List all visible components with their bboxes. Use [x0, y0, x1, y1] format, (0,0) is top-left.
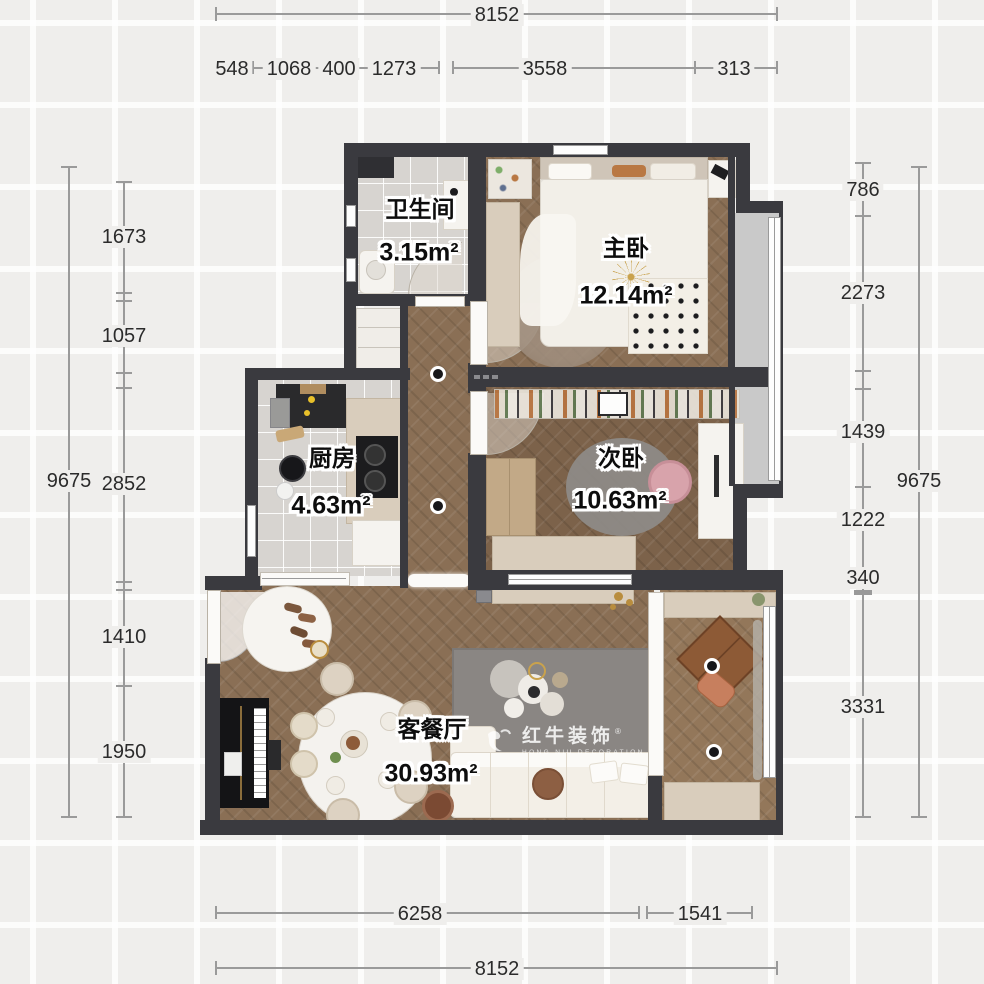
- closet-shelf-line: [358, 327, 400, 328]
- lemon-decor: [304, 410, 310, 416]
- vent-dash: [474, 375, 480, 379]
- bed-pillow: [650, 163, 696, 180]
- kitchen-sliding-door: [260, 572, 350, 586]
- plate: [326, 776, 345, 795]
- room-name-master: 主卧: [603, 229, 649, 263]
- dim-left-sub-2: 2852: [98, 473, 151, 495]
- dim-tick: [855, 816, 871, 818]
- room-area-bathroom: 3.15m²: [379, 239, 458, 268]
- sofa-pillow: [619, 762, 649, 785]
- bathroom-window: [346, 205, 356, 227]
- wall-second-right: [729, 385, 735, 486]
- dim-right-sub-3: 1222: [837, 509, 890, 531]
- room-area-living: 30.93m²: [384, 760, 477, 789]
- dim-right-sub-4: 340: [842, 567, 883, 589]
- dim-left-sub-4: 1950: [98, 741, 151, 763]
- dim-tick: [116, 387, 132, 389]
- dim-tick: [116, 685, 132, 687]
- dim-top-total: 8152: [471, 4, 524, 26]
- shower-area: [358, 156, 394, 178]
- room-name-bathroom: 卫生间: [386, 190, 455, 224]
- dim-tick: [438, 61, 440, 74]
- console-device: [476, 590, 492, 603]
- gold-tray: [310, 640, 329, 659]
- ceiling-light-icon: [704, 658, 720, 674]
- duvet-spill: [520, 214, 576, 326]
- dim-tick: [776, 7, 778, 21]
- dim-tick: [855, 215, 871, 217]
- hall-closet: [356, 308, 404, 372]
- piano-keys: [254, 708, 266, 798]
- master-dresser: [486, 202, 520, 347]
- sofa-pillow: [589, 760, 620, 784]
- stool: [290, 750, 318, 778]
- wall-hallway-left: [400, 303, 408, 588]
- watermark-brand: 红牛装饰: [522, 727, 614, 746]
- window-line: [774, 217, 775, 481]
- wall-left-bottom: [205, 658, 220, 823]
- bull-logo-icon: [484, 726, 514, 756]
- curtain: [753, 620, 762, 780]
- dim-top-sub-4: 3558: [519, 58, 572, 80]
- dim-top-sub-0: 548: [211, 58, 252, 80]
- master-door-jamb: [470, 301, 488, 365]
- watermark-text: 红牛装饰 ® HONG NIU DECORATION: [522, 727, 645, 756]
- registered-mark: ®: [615, 727, 621, 736]
- wall-top-right-v: [736, 157, 750, 203]
- desk-monitor: [714, 455, 719, 497]
- chandelier-ring-gold: [528, 662, 546, 680]
- dim-tick: [911, 816, 927, 818]
- robot-vacuum: [279, 455, 306, 482]
- dim-right-sub-5: 3331: [837, 696, 890, 718]
- chandelier-disc: [540, 692, 564, 716]
- bathroom-window: [346, 258, 356, 282]
- dim-tick: [215, 7, 217, 21]
- dim-right-total: 9675: [893, 470, 946, 492]
- dim-left-sub-1: 1057: [98, 325, 151, 347]
- chandelier-dot: [528, 686, 540, 698]
- bed-pillow: [548, 163, 592, 180]
- dim-line: [862, 162, 864, 818]
- wall-top: [344, 143, 750, 157]
- dim-tick: [638, 906, 640, 919]
- wall-bottom: [200, 820, 783, 835]
- wall-kitchen-top: [245, 368, 410, 380]
- vent-dash: [492, 375, 498, 379]
- dim-tick: [911, 166, 927, 168]
- dim-tick: [116, 816, 132, 818]
- kitchen-cabinet-low: [352, 520, 402, 566]
- gold-decor: [626, 599, 633, 606]
- burner-icon: [364, 470, 386, 492]
- gold-decor: [610, 604, 616, 610]
- wood-board: [300, 384, 326, 394]
- room-area-kitchen: 4.63m²: [291, 492, 370, 521]
- wall-closet-left: [344, 296, 356, 372]
- floor-plan-page: { "dims": { "top_total": "8152", "top_su…: [0, 0, 984, 984]
- dim-tick: [855, 162, 871, 164]
- dim-tick: [751, 906, 753, 919]
- dim-bottom-total: 8152: [471, 958, 524, 980]
- sofa-cushion-brown: [532, 768, 564, 800]
- plate: [316, 708, 335, 727]
- room-area-second: 10.63m²: [573, 487, 666, 516]
- dim-tick: [776, 961, 778, 975]
- ceiling-light-icon: [430, 498, 446, 514]
- dim-top-sub-2: 400: [318, 58, 359, 80]
- dim-tick: [452, 61, 454, 74]
- dim-tick: [116, 581, 132, 583]
- dim-tick: [61, 166, 77, 168]
- dim-right-sub-2: 1439: [837, 421, 890, 443]
- window-line: [508, 579, 632, 580]
- entry-shoe-rug: [242, 586, 332, 672]
- dim-tick: [646, 906, 648, 919]
- hallway-floor: [406, 304, 470, 590]
- watermark: 红牛装饰 ® HONG NIU DECORATION: [484, 726, 645, 756]
- doormat: [408, 574, 470, 587]
- door-track-line: [262, 578, 346, 579]
- closet-shelf-line: [358, 347, 400, 348]
- dim-top-sub-3: 1273: [368, 58, 421, 80]
- dim-line: [918, 166, 920, 818]
- food-dish: [346, 736, 360, 750]
- dim-left-sub-0: 1673: [98, 226, 151, 248]
- vent-dash: [483, 375, 489, 379]
- gold-decor: [614, 592, 623, 601]
- wall-entry-top: [205, 576, 262, 590]
- wall-top-right-h: [736, 201, 783, 213]
- dim-line: [68, 166, 70, 818]
- dim-tick: [61, 816, 77, 818]
- dim-line: [123, 181, 125, 818]
- bed-pillow-orange: [612, 165, 646, 177]
- wall-study-left-stub: [648, 774, 662, 822]
- sheet-music: [224, 752, 242, 776]
- dim-top-sub-5: 313: [713, 58, 754, 80]
- dim-tick: [776, 61, 778, 74]
- piano-bench: [268, 740, 281, 770]
- wall-right-notch: [733, 496, 747, 576]
- plate: [380, 712, 399, 731]
- master-top-window: [553, 145, 608, 155]
- wall-study-top: [630, 570, 783, 590]
- room-area-master: 12.14m²: [579, 282, 672, 311]
- dim-tick: [694, 61, 696, 74]
- burner-icon: [364, 444, 386, 466]
- wall-study-right: [776, 588, 783, 822]
- dim-tick: [855, 370, 871, 372]
- dim-tick: [855, 388, 871, 390]
- wall-master-left: [468, 157, 486, 303]
- dim-tick: [116, 292, 132, 294]
- dim-top-sub-1: 1068: [263, 58, 316, 80]
- dim-tick: [854, 590, 872, 595]
- pouf: [422, 790, 454, 822]
- bedroom-decor: [488, 159, 532, 199]
- dim-bottom-sub-1: 1541: [674, 903, 727, 925]
- shelf-frame: [598, 392, 628, 416]
- window-line: [769, 606, 770, 778]
- dim-tick: [116, 181, 132, 183]
- room-name-kitchen: 厨房: [309, 439, 355, 473]
- ceiling-light-icon: [706, 744, 722, 760]
- stool: [290, 712, 318, 740]
- tv-console: [492, 588, 634, 604]
- room-name-second: 次卧: [598, 439, 644, 473]
- dim-tick: [116, 589, 132, 591]
- dining-chair: [320, 662, 354, 696]
- dim-left-total: 9675: [43, 470, 96, 492]
- dim-left-sub-3: 1410: [98, 626, 151, 648]
- lemon-decor: [308, 396, 315, 403]
- plant: [752, 593, 765, 606]
- ceiling-light-icon: [430, 366, 446, 382]
- second-door-jamb: [470, 391, 488, 455]
- dim-right-sub-1: 2273: [837, 282, 890, 304]
- dim-right-sub-0: 786: [842, 179, 883, 201]
- room-name-living: 客餐厅: [398, 710, 467, 744]
- wall-master-right: [728, 157, 735, 369]
- bathroom-door-jamb: [415, 296, 465, 307]
- dim-tick: [215, 961, 217, 975]
- chandelier-disc: [504, 698, 524, 718]
- wall-hall-right-low: [468, 453, 486, 588]
- kitchen-window: [247, 505, 256, 557]
- greens-dish: [330, 752, 341, 763]
- dim-bottom-sub-0: 6258: [394, 903, 447, 925]
- wardrobe: [486, 458, 536, 536]
- study-bench-band: [664, 782, 760, 822]
- study-cased-opening: [648, 592, 664, 776]
- dim-tick: [855, 486, 871, 488]
- watermark-sub: HONG NIU DECORATION: [522, 749, 645, 756]
- chandelier-disc: [552, 672, 568, 688]
- dim-tick: [116, 372, 132, 374]
- wall-bedroom-divider: [468, 367, 783, 387]
- dim-tick: [215, 906, 217, 919]
- kitchen-cabinet-grey: [270, 398, 290, 428]
- entry-door-panel: [207, 590, 221, 664]
- dim-tick: [116, 300, 132, 302]
